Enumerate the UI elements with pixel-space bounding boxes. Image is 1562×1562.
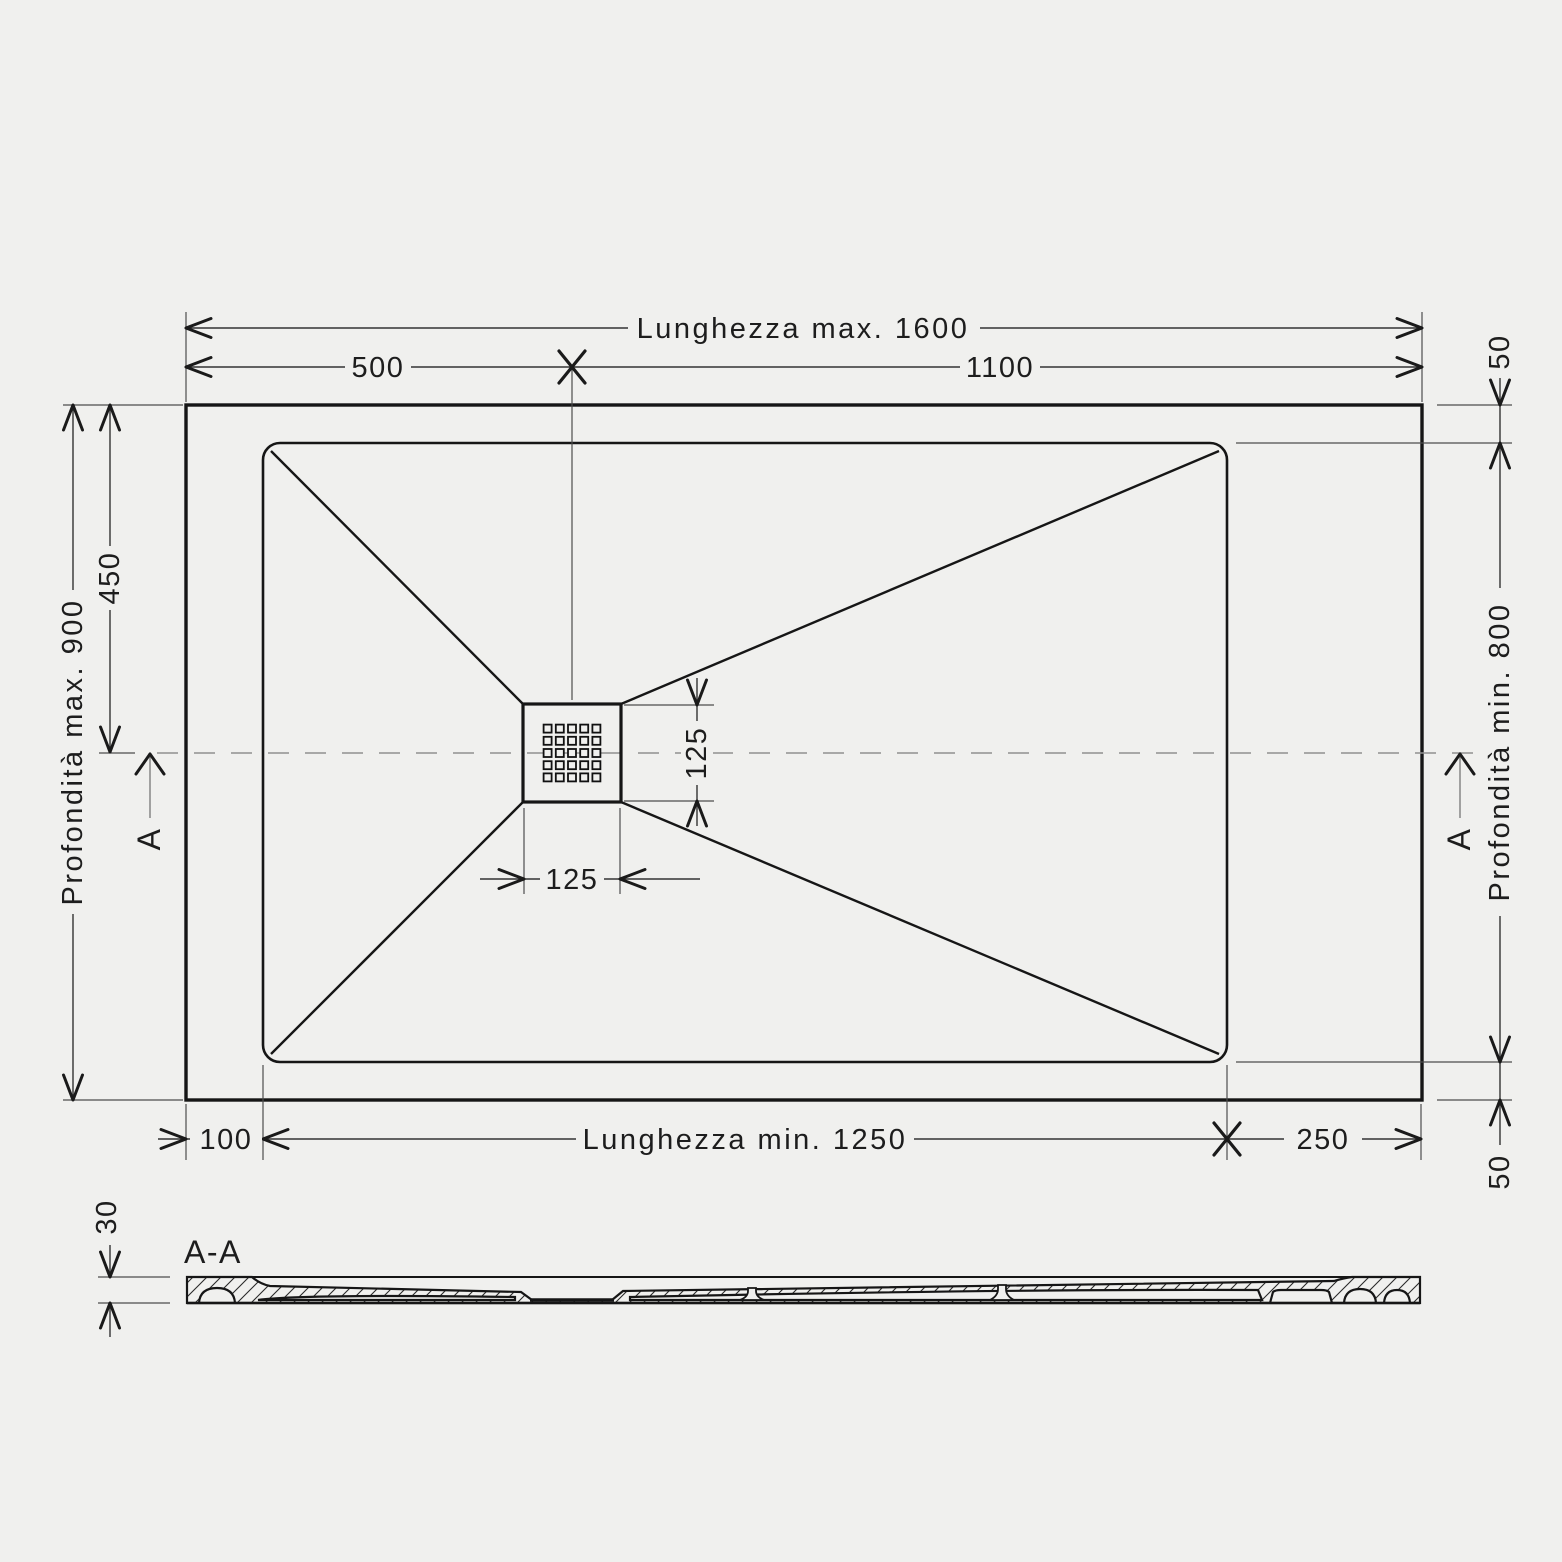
- drain-grate: [544, 725, 601, 782]
- dim-depth-max-label: Profondità max. 900: [57, 598, 89, 905]
- section-title: A-A: [184, 1234, 242, 1270]
- section-cut-arrows: [136, 754, 1474, 774]
- dim-50-top-label: 50: [1484, 334, 1516, 369]
- section-cut-stems: [150, 757, 1460, 818]
- dim-length-max-label: Lunghezza max. 1600: [637, 313, 970, 345]
- extension-lines: [63, 312, 1512, 1160]
- section-marker-left-label: A: [131, 828, 167, 851]
- dim-50-bottom-label: 50: [1484, 1154, 1516, 1189]
- section-view: 30 A-A: [91, 1199, 1420, 1337]
- dim-drain-horizontal-label: 125: [546, 864, 599, 896]
- dim-250-label: 250: [1297, 1124, 1350, 1156]
- dim-450-label: 450: [94, 552, 126, 605]
- dim-drain-vertical-label: 125: [681, 727, 713, 780]
- technical-drawing-canvas: Lunghezza max. 1600 500 1100 Profondità …: [0, 0, 1562, 1562]
- section-marker-right-label: A: [1441, 828, 1477, 851]
- dim-100-label: 100: [200, 1124, 253, 1156]
- section-profile: [187, 1277, 1420, 1303]
- section-thickness-dim: 30: [91, 1199, 170, 1337]
- slope-fold-lines: [271, 451, 1219, 1054]
- label-knockouts: [55, 312, 1518, 1155]
- dim-30-label: 30: [91, 1199, 123, 1234]
- dim-1100-label: 1100: [966, 352, 1034, 384]
- dim-length-min-label: Lunghezza min. 1250: [583, 1124, 908, 1156]
- dim-depth-min-label: Profondità min. 800: [1484, 603, 1516, 902]
- dimension-lines: [73, 328, 1500, 1145]
- plan-view: Lunghezza max. 1600 500 1100 Profondità …: [55, 312, 1518, 1190]
- dim-500-label: 500: [352, 352, 405, 384]
